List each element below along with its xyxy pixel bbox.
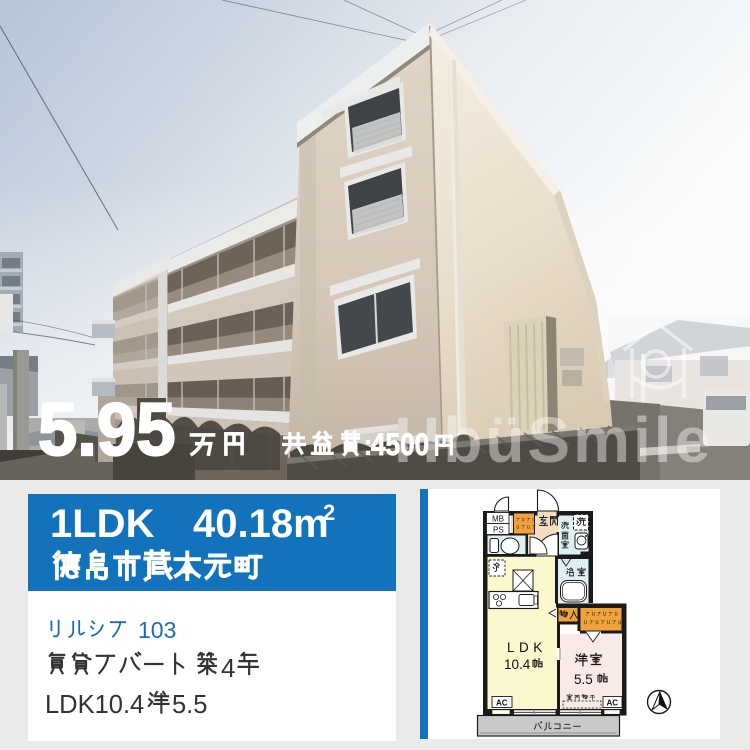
svg-text:1LDK: 1LDK [50, 502, 155, 546]
svg-text:5.5: 5.5 [574, 672, 593, 687]
svg-text:5.95: 5.95 [38, 390, 176, 472]
svg-text:LDK10.4: LDK10.4 [45, 691, 144, 719]
svg-text:MB: MB [492, 515, 504, 524]
svg-text:103: 103 [138, 617, 176, 643]
svg-text:4: 4 [221, 653, 235, 683]
svg-text:HbüSmile: HbüSmile [394, 404, 713, 476]
svg-text:AC: AC [607, 699, 619, 708]
svg-text:AC: AC [496, 699, 508, 708]
svg-text:5.5: 5.5 [172, 691, 207, 719]
svg-text:PS: PS [493, 526, 504, 535]
svg-text:10.4: 10.4 [504, 657, 531, 672]
svg-text:40.18m: 40.18m [193, 502, 329, 546]
svg-text:4500: 4500 [371, 428, 429, 463]
svg-text:2: 2 [323, 500, 335, 525]
svg-text:LDK: LDK [507, 640, 547, 655]
